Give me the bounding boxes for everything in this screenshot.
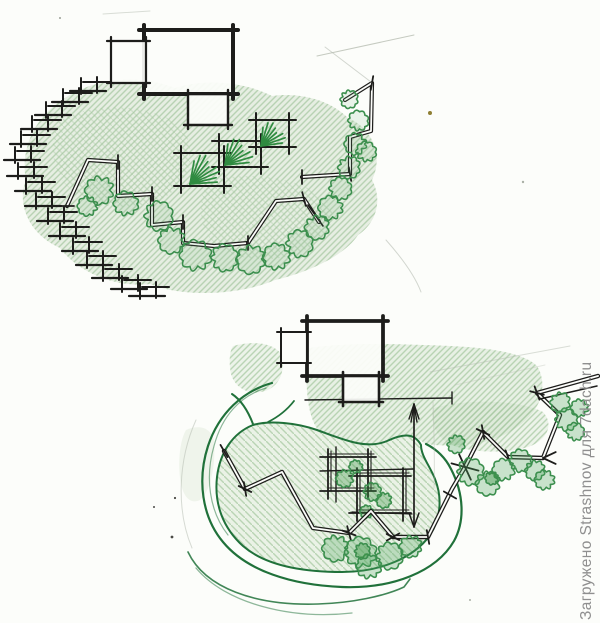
watermark-text: Загружено Strashnov для 7dach.ru (578, 362, 595, 620)
scanned-sketch-page: Загружено Strashnov для 7dach.ru (0, 0, 600, 623)
lower-plan-sketch (179, 316, 598, 615)
upper-plan-sketch (4, 25, 377, 299)
sketch-canvas: Загружено Strashnov для 7dach.ru (0, 0, 600, 623)
